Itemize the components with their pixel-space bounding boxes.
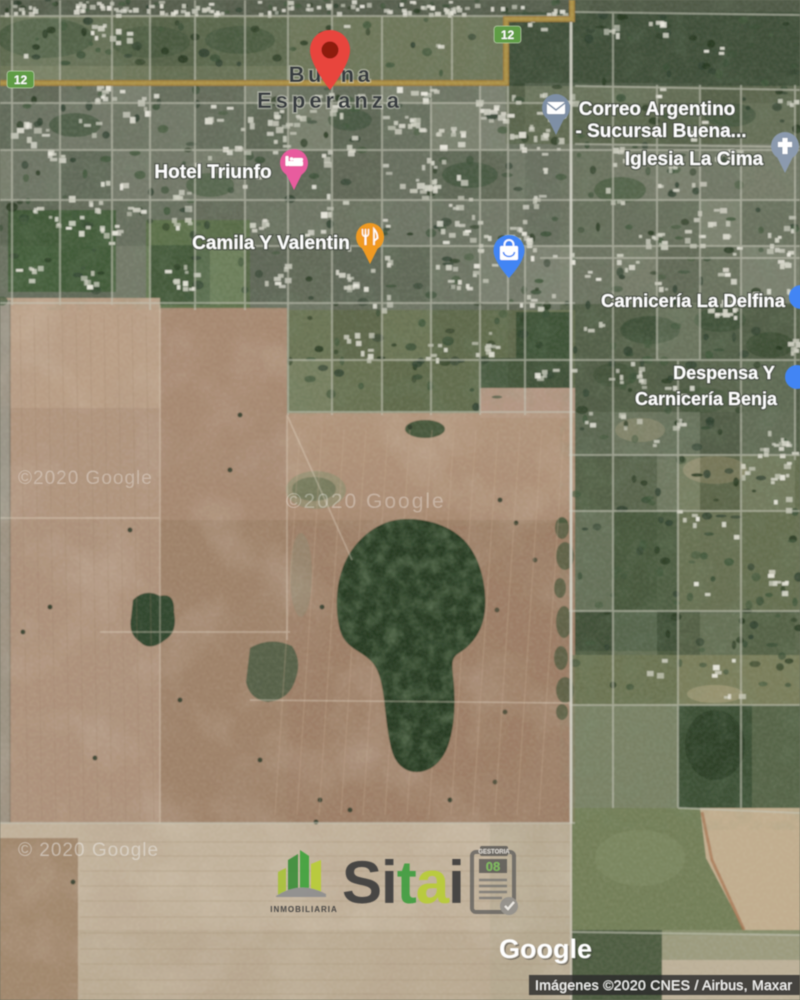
svg-text:© 2020 Google: © 2020 Google xyxy=(18,840,159,861)
svg-text:©2020 Google: ©2020 Google xyxy=(286,490,446,513)
svg-text:GESTORIA: GESTORIA xyxy=(478,850,510,856)
svg-text:Camila Y Valentin: Camila Y Valentin xyxy=(192,233,350,254)
svg-text:Google: Google xyxy=(499,934,592,964)
svg-text:12: 12 xyxy=(14,73,28,87)
svg-text:08: 08 xyxy=(486,859,500,874)
svg-text:12: 12 xyxy=(501,28,515,42)
svg-text:Sitai: Sitai xyxy=(342,849,464,916)
svg-text:©2020 Google: ©2020 Google xyxy=(18,468,153,489)
svg-text:Esperanza: Esperanza xyxy=(257,88,403,113)
svg-text:Hotel Triunfo: Hotel Triunfo xyxy=(154,162,271,183)
svg-text:- Sucursal Buena...: - Sucursal Buena... xyxy=(575,121,746,142)
svg-text:Carnicería Benja: Carnicería Benja xyxy=(635,389,778,409)
svg-text:Despensa Y: Despensa Y xyxy=(673,363,775,383)
svg-text:Correo Argentino: Correo Argentino xyxy=(579,99,736,120)
svg-text:Carnicería La Delfina: Carnicería La Delfina xyxy=(601,290,786,311)
svg-text:INMOBILIARIA: INMOBILIARIA xyxy=(270,905,338,914)
svg-text:Imágenes ©2020 CNES / Airbus,: Imágenes ©2020 CNES / Airbus, Maxar xyxy=(535,977,792,993)
svg-text:Iglesia La Cima: Iglesia La Cima xyxy=(625,149,764,170)
